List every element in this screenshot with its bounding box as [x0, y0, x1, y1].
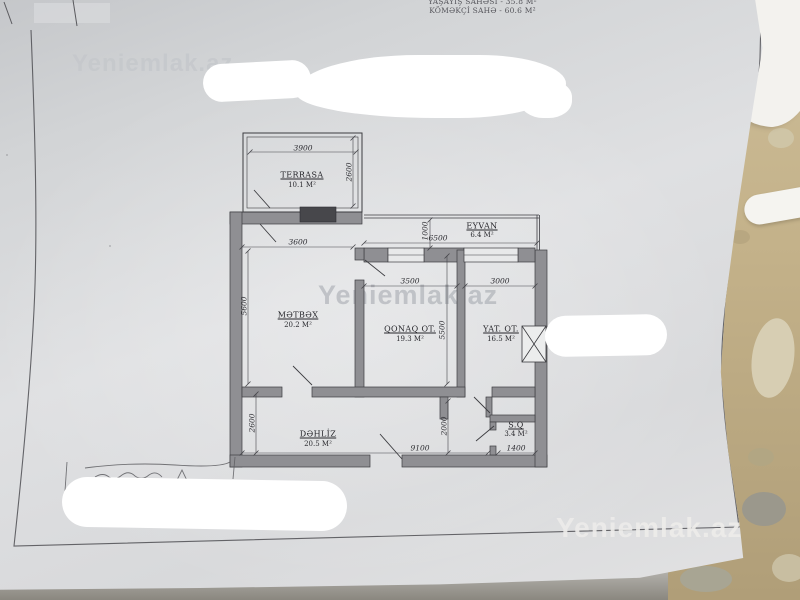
- white-pipe-object: [742, 183, 800, 227]
- stone: [747, 315, 800, 400]
- watermark-bottom-right: Yeniemlak.az: [556, 512, 742, 544]
- whiteout-bottom-left: [62, 477, 348, 532]
- whiteout-right: [545, 314, 668, 357]
- whiteout-top-right: [520, 80, 572, 118]
- stone: [680, 566, 732, 592]
- whiteout-top-left: [202, 59, 312, 103]
- photo-of-floor-plan-document: { "header": { "line1": "YAŞAYIŞ SAHƏSİ -…: [0, 0, 800, 600]
- stone: [748, 448, 774, 466]
- stone: [772, 554, 800, 582]
- paper-sheet: YAŞAYIŞ SAHƏSİ - 35.8 M² KÖMƏKÇİ SAHƏ - …: [0, 0, 800, 600]
- stone: [742, 492, 786, 526]
- stone: [768, 128, 794, 148]
